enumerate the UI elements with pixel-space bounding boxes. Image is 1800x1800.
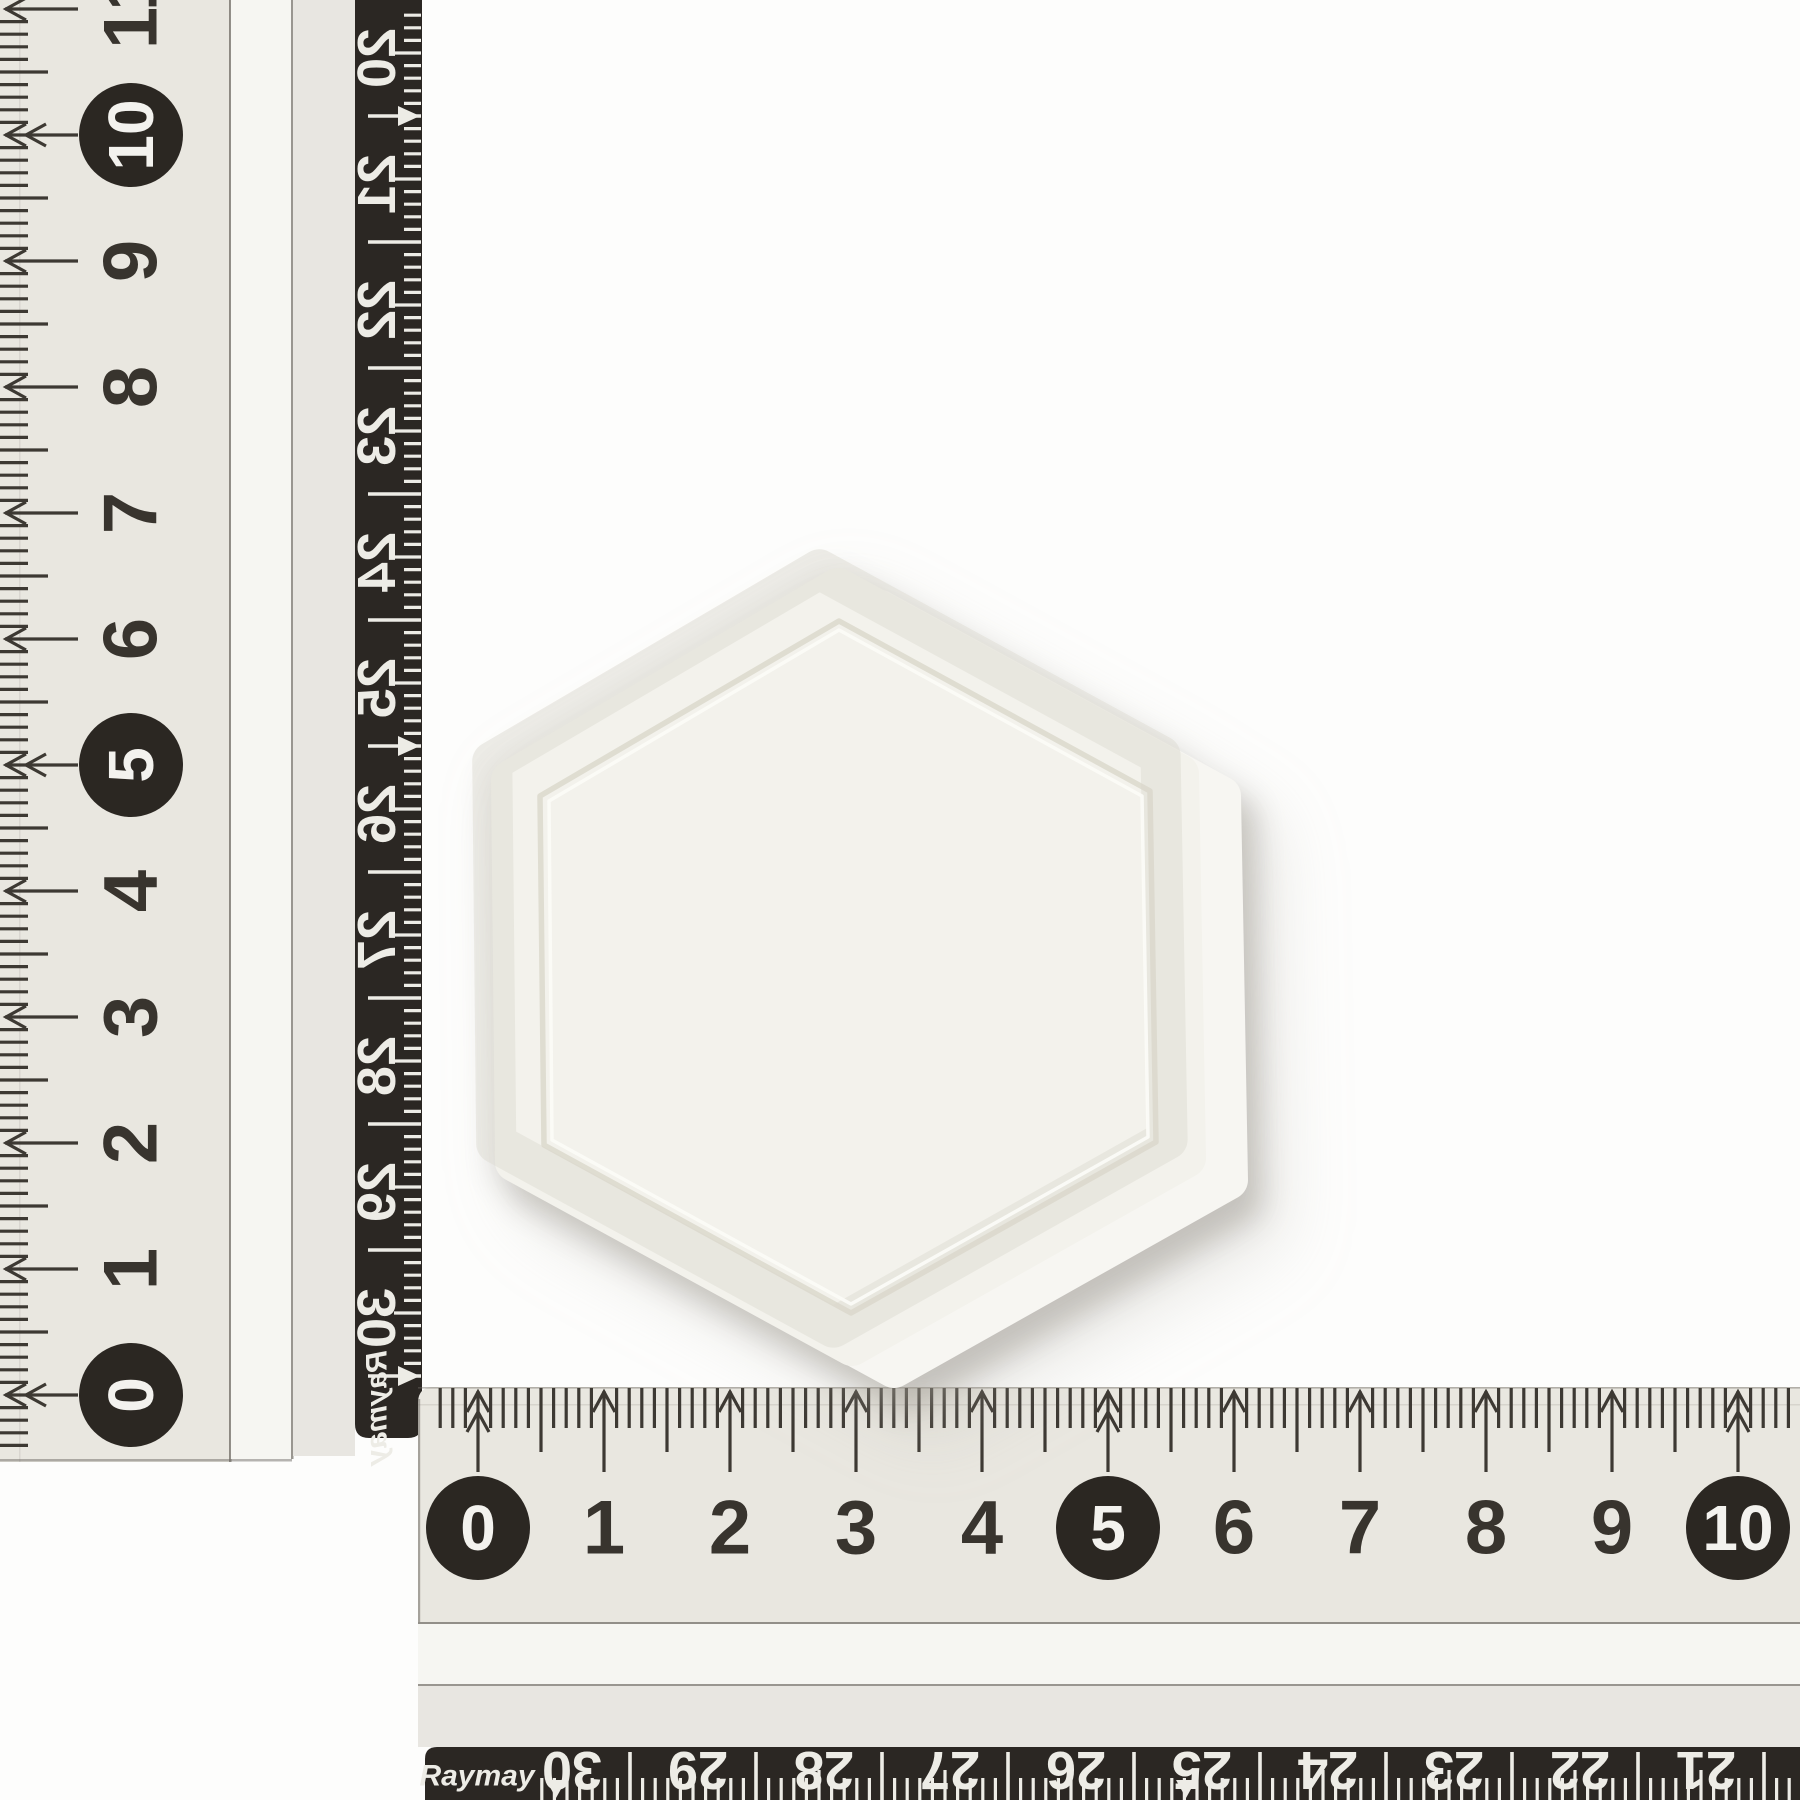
hruler-number-7: 7	[1339, 1486, 1381, 1571]
hruler-number-1: 1	[583, 1486, 625, 1571]
vruler-back-number-23: 23	[347, 406, 407, 466]
vruler-back-number-30: 30	[347, 1288, 407, 1348]
vruler-number-1: 1	[89, 1248, 174, 1290]
vruler-back-number-28: 28	[347, 1036, 407, 1096]
hruler-back-number-25: 25	[1172, 1740, 1232, 1800]
hruler-number-9: 9	[1591, 1486, 1633, 1571]
vruler-number-0: 0	[95, 1377, 167, 1413]
vruler-bottom-edge	[0, 1459, 292, 1462]
hruler-number-8: 8	[1465, 1486, 1507, 1571]
hruler-back-number-21: 21	[1676, 1740, 1736, 1800]
vruler-back-number-25: 25	[347, 658, 407, 718]
vruler-number-4: 4	[89, 870, 174, 912]
vruler-bevel	[231, 0, 291, 1459]
hruler-back-number-23: 23	[1424, 1740, 1484, 1800]
vruler-number-6: 6	[89, 618, 174, 660]
vruler-back-number-26: 26	[347, 784, 407, 844]
vruler-number-8: 8	[89, 366, 174, 408]
vruler-number-3: 3	[89, 996, 174, 1038]
horizontal-ruler: 01234567891030292827262524232221Raymay	[418, 1387, 1800, 1800]
vruler-number-9: 9	[89, 240, 174, 282]
vruler-number-10: 10	[95, 99, 167, 170]
vruler-back-number-27: 27	[347, 910, 407, 970]
hruler-number-6: 6	[1213, 1486, 1255, 1571]
hruler-number-2: 2	[709, 1486, 751, 1571]
hruler-back-number-24: 24	[1298, 1740, 1358, 1800]
hruler-number-10: 10	[1702, 1492, 1773, 1564]
scene-svg: 012345678910112021222324252627282930Raym…	[0, 0, 1800, 1800]
vruler-back-number-24: 24	[347, 532, 407, 592]
vruler-back-number-22: 22	[347, 280, 407, 340]
vruler-back-number-20: 20	[347, 28, 407, 88]
vruler-gap	[293, 0, 355, 1456]
hruler-back-number-29: 29	[668, 1740, 728, 1800]
vruler-back-number-21: 21	[347, 154, 407, 214]
hruler-left-edge	[418, 1399, 420, 1622]
hruler-number-3: 3	[835, 1486, 877, 1571]
hruler-gap	[418, 1686, 1800, 1747]
hruler-back-number-28: 28	[794, 1740, 854, 1800]
vruler-back-number-29: 29	[347, 1162, 407, 1222]
vruler-number-7: 7	[89, 492, 174, 534]
vruler-number-2: 2	[89, 1122, 174, 1164]
hruler-top-edge	[418, 1387, 1800, 1389]
hruler-number-5: 5	[1090, 1492, 1126, 1564]
hruler-back-number-27: 27	[920, 1740, 980, 1800]
hruler-back-number-22: 22	[1550, 1740, 1610, 1800]
hruler-raymay-logo: Raymay	[419, 1760, 535, 1793]
hruler-back-number-26: 26	[1046, 1740, 1106, 1800]
vruler-number-5: 5	[95, 747, 167, 783]
hruler-bevel	[418, 1624, 1800, 1684]
hruler-number-4: 4	[961, 1486, 1003, 1571]
hruler-back-number-30: 30	[542, 1740, 602, 1800]
vruler-raymay-logo: Raymay	[361, 1350, 394, 1466]
vertical-ruler: 012345678910112021222324252627282930Raym…	[0, 0, 422, 1467]
hruler-number-0: 0	[460, 1492, 496, 1564]
photo-stage: 012345678910112021222324252627282930Raym…	[0, 0, 1800, 1800]
vruler-number-11: 11	[89, 0, 174, 49]
